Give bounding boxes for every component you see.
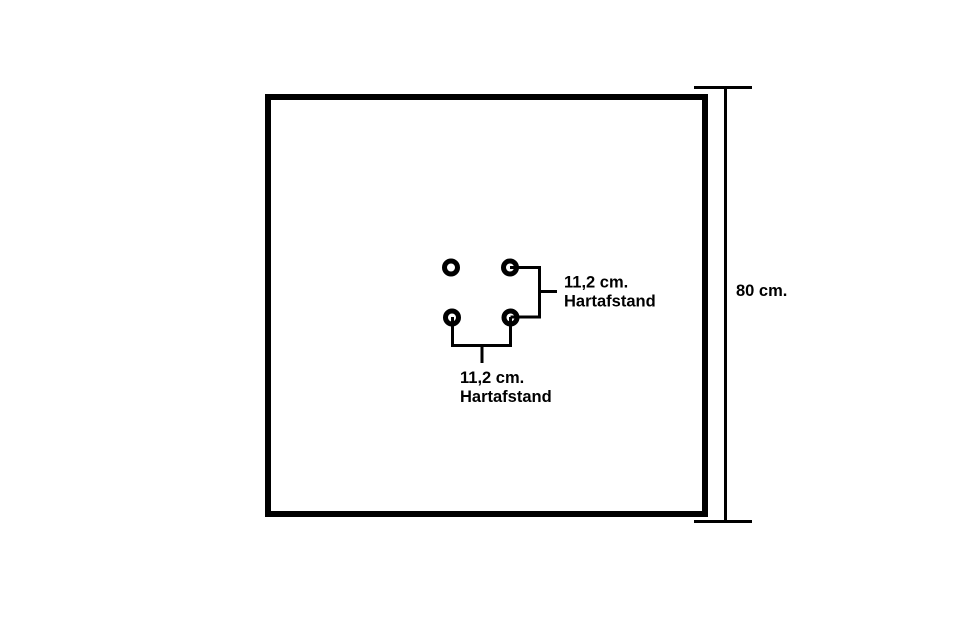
svg-text:Hartafstand: Hartafstand [564,293,656,311]
svg-text:Hartafstand: Hartafstand [460,388,552,406]
svg-text:11,2 cm.: 11,2 cm. [564,274,628,292]
svg-text:80 cm.: 80 cm. [736,282,787,300]
svg-text:11,2 cm.: 11,2 cm. [460,369,524,387]
